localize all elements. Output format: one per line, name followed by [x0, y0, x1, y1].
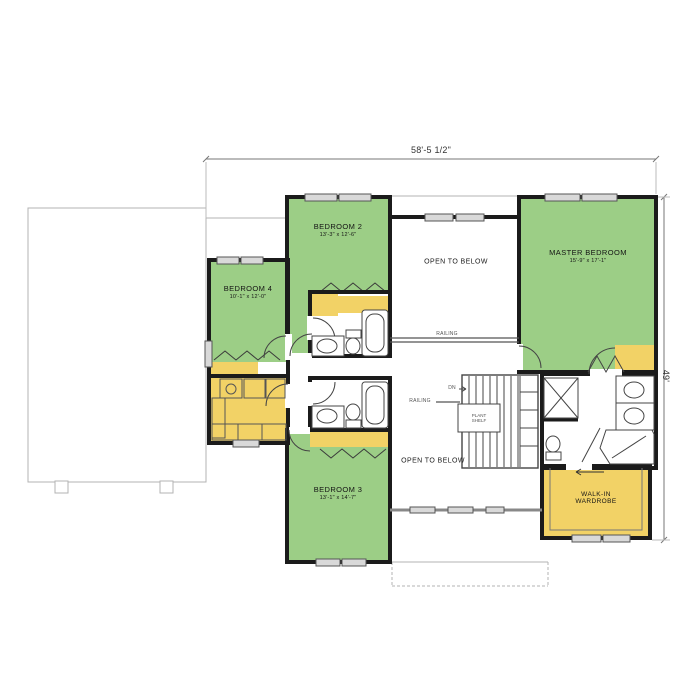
master-bedroom-size: 15'-9" x 17'-1": [549, 258, 627, 264]
dimension-width-label: 58'-5 1/2": [411, 145, 451, 155]
floor-plan-drawing: [0, 0, 700, 700]
railing-lines: [390, 338, 519, 402]
master-bedroom-label: MASTER BEDROOM 15'-9" x 17'-1": [549, 248, 627, 264]
open-to-below-bottom-label: OPEN TO BELOW: [401, 458, 465, 465]
railing-top-label: RAILING: [436, 331, 457, 337]
walk-in-wardrobe-label: WALK-IN WARDROBE: [575, 491, 616, 505]
bedroom2-size: 13'-3" x 12'-6": [314, 232, 363, 238]
dimension-height-label: 49': [661, 370, 671, 382]
wardrobe-line2: WARDROBE: [575, 498, 616, 505]
railing-stairs-label: RAILING: [409, 398, 430, 404]
bedroom2-label: BEDROOM 2 13'-3" x 12'-6": [314, 222, 363, 238]
plant-shelf-label: PLANT SHELF: [472, 413, 487, 423]
bedroom4-label: BEDROOM 4 10'-1" x 12'-0": [224, 284, 273, 300]
master-bath-fixtures: [544, 376, 654, 464]
master-bedroom-name: MASTER BEDROOM: [549, 248, 627, 257]
bathroom-upper-fixtures: [312, 310, 388, 356]
garage-roof-outline: [28, 208, 206, 493]
bedroom4-name: BEDROOM 4: [224, 284, 273, 293]
bedroom4-size: 10'-1" x 12'-0": [224, 294, 273, 300]
bedroom3-name: BEDROOM 3: [314, 485, 363, 494]
staircase: [458, 375, 538, 468]
wardrobe-line1: WALK-IN: [575, 491, 616, 498]
bedroom3-size: 13'-1" x 14'-7": [314, 495, 363, 501]
bedroom2-name: BEDROOM 2: [314, 222, 363, 231]
open-to-below-top-label: OPEN TO BELOW: [424, 259, 488, 266]
bathroom-lower-fixtures: [312, 382, 388, 428]
floor-plan: 58'-5 1/2" 49' BEDROOM 2 13'-3" x 12'-6"…: [0, 0, 700, 700]
plant-shelf-line2: SHELF: [472, 418, 487, 423]
stairs-dn-label: DN: [448, 385, 456, 391]
bedroom3-label: BEDROOM 3 13'-1" x 14'-7": [314, 485, 363, 501]
